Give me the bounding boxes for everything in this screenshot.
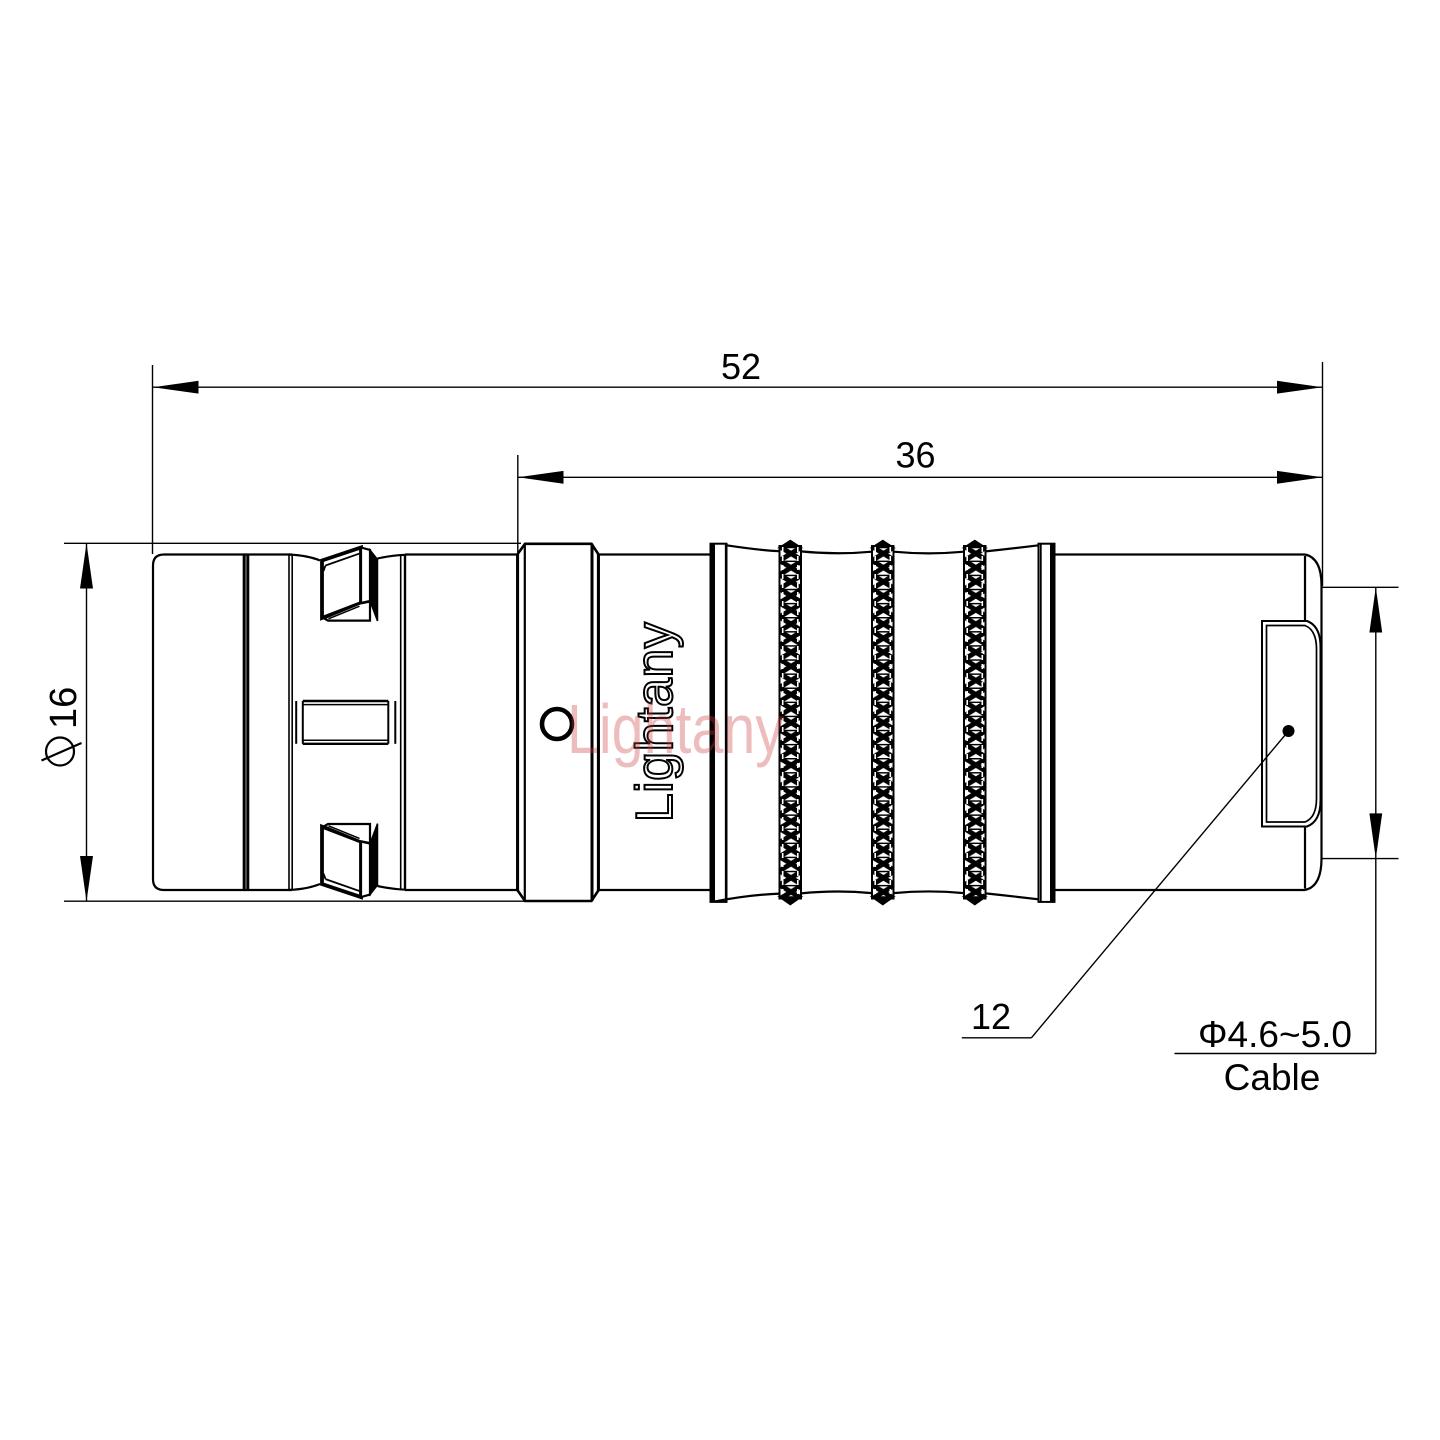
svg-text:Φ4.6~5.0: Φ4.6~5.0: [1198, 1014, 1352, 1055]
svg-text:12: 12: [971, 996, 1011, 1037]
svg-text:Lightany: Lightany: [567, 690, 784, 769]
svg-text:16: 16: [43, 687, 85, 729]
svg-text:Cable: Cable: [1224, 1057, 1321, 1098]
svg-text:52: 52: [721, 346, 761, 387]
svg-text:36: 36: [895, 435, 935, 476]
